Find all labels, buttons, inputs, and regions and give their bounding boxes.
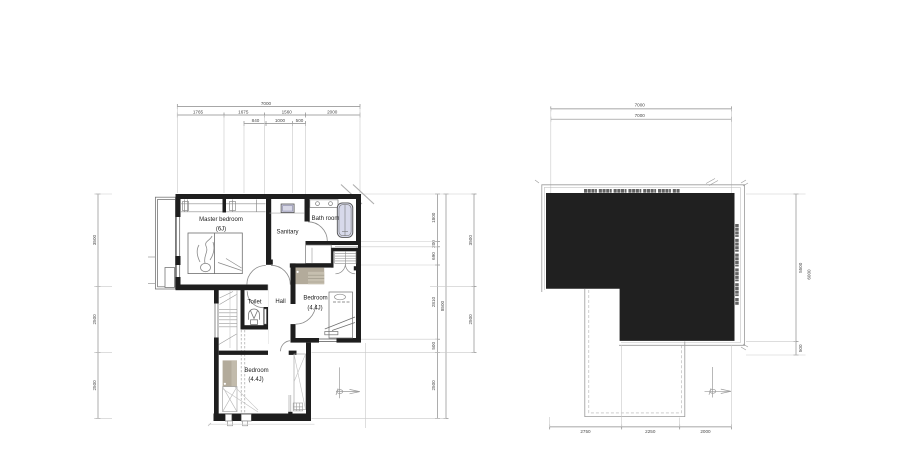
svg-text:1765: 1765: [193, 110, 204, 115]
svg-text:500: 500: [296, 118, 304, 123]
svg-text:1675: 1675: [238, 110, 249, 115]
svg-text:3500: 3500: [468, 235, 473, 246]
svg-text:7000: 7000: [635, 103, 646, 108]
svg-text:2500: 2500: [92, 314, 97, 325]
svg-text:2810: 2810: [431, 296, 436, 307]
svg-text:Bedroom: Bedroom: [303, 296, 327, 302]
svg-text:(4.4J): (4.4J): [248, 377, 263, 383]
svg-text:3500: 3500: [92, 234, 97, 245]
svg-text:690: 690: [431, 252, 436, 260]
svg-text:Bedroom: Bedroom: [244, 368, 268, 374]
svg-text:2250: 2250: [645, 429, 656, 434]
svg-text:500: 500: [431, 342, 436, 350]
svg-text:1000: 1000: [275, 118, 286, 123]
svg-text:1800: 1800: [431, 212, 436, 223]
svg-text:500: 500: [798, 344, 803, 352]
svg-text:8500: 8500: [440, 300, 445, 311]
svg-text:7000: 7000: [261, 101, 272, 106]
svg-text:5500: 5500: [798, 262, 803, 273]
svg-text:Bath room: Bath room: [312, 216, 340, 222]
svg-text:840: 840: [252, 118, 260, 123]
svg-text:Toilet: Toilet: [247, 299, 261, 305]
svg-text:7000: 7000: [635, 113, 646, 118]
svg-text:2500: 2500: [468, 314, 473, 325]
svg-text:2000: 2000: [327, 110, 338, 115]
svg-text:Sanitary: Sanitary: [276, 229, 298, 235]
svg-text:Hall: Hall: [275, 299, 285, 305]
svg-text:2500: 2500: [431, 380, 436, 391]
svg-text:(4.4J): (4.4J): [307, 305, 322, 311]
svg-text:(6J): (6J): [216, 227, 226, 233]
svg-text:Master bedroom: Master bedroom: [199, 217, 243, 223]
svg-text:2500: 2500: [92, 380, 97, 391]
svg-text:2750: 2750: [580, 429, 591, 434]
svg-text:2000: 2000: [700, 429, 711, 434]
svg-text:6000: 6000: [807, 269, 812, 280]
svg-text:1560: 1560: [282, 110, 293, 115]
